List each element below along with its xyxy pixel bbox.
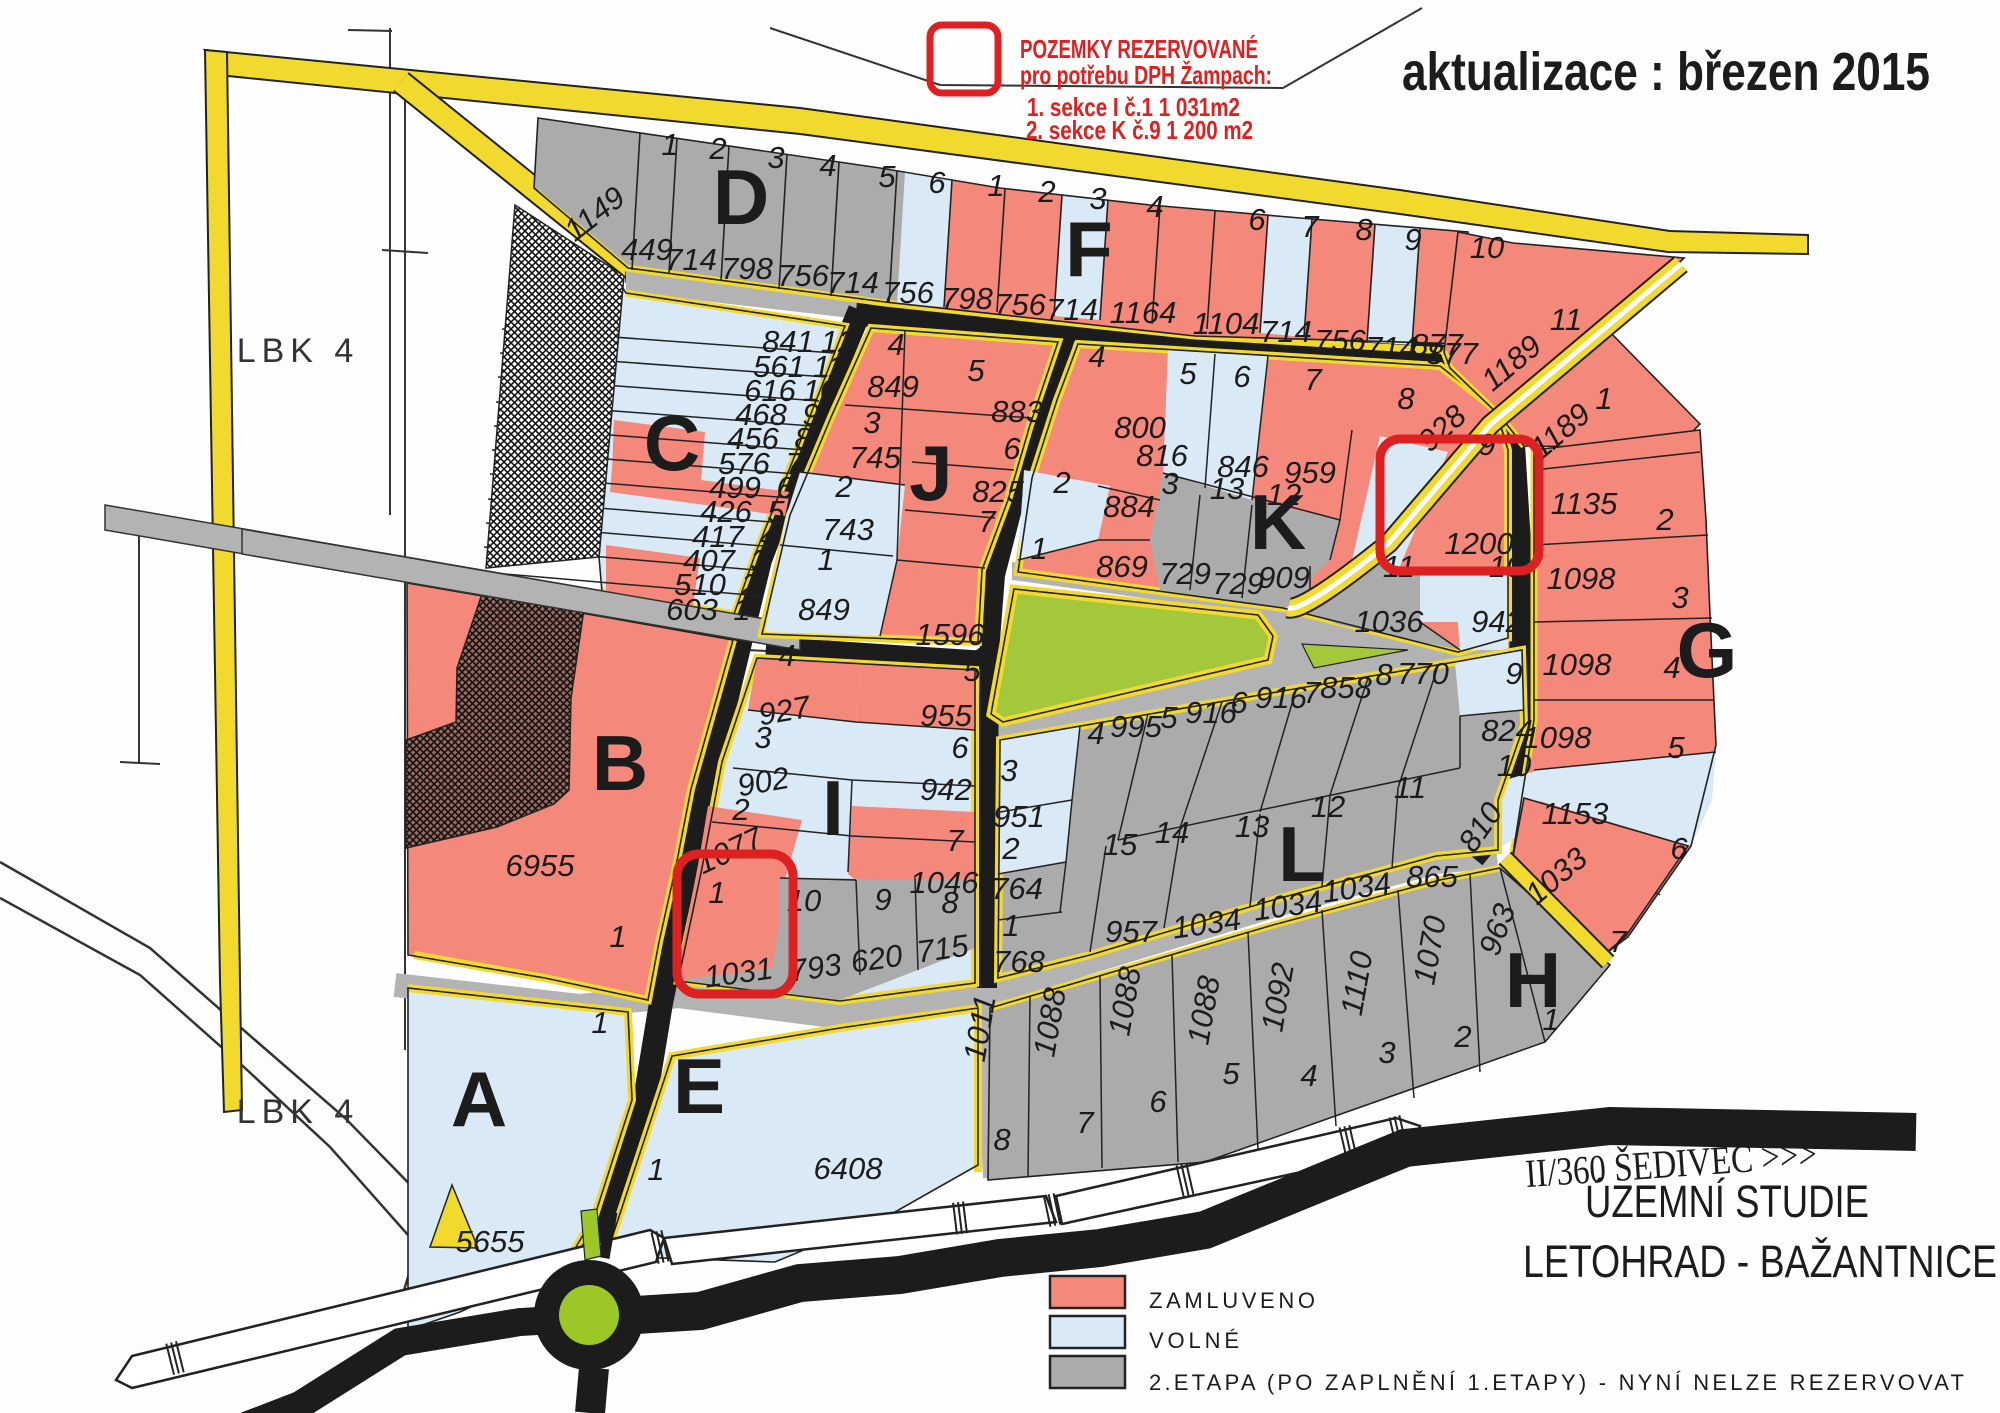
svg-text:5655: 5655 [456, 1224, 526, 1259]
svg-text:LBK 4: LBK 4 [237, 332, 360, 370]
svg-text:798: 798 [721, 251, 773, 286]
svg-text:770: 770 [1397, 656, 1449, 691]
svg-text:5: 5 [1160, 700, 1178, 735]
svg-text:6: 6 [1003, 431, 1021, 466]
svg-text:714: 714 [1365, 330, 1417, 365]
svg-text:5: 5 [878, 159, 896, 194]
svg-text:11: 11 [1550, 302, 1582, 337]
svg-text:6: 6 [1670, 831, 1688, 866]
svg-text:942: 942 [920, 772, 972, 807]
svg-text:7: 7 [1609, 924, 1628, 959]
svg-text:6: 6 [1233, 359, 1251, 394]
svg-text:3: 3 [1161, 466, 1178, 501]
svg-text:7: 7 [978, 504, 997, 539]
svg-text:1164: 1164 [1110, 295, 1177, 330]
svg-text:2: 2 [1001, 831, 1019, 866]
svg-text:6: 6 [1230, 685, 1248, 720]
svg-text:4: 4 [1087, 716, 1104, 751]
svg-text:J: J [909, 429, 952, 517]
svg-text:916: 916 [1255, 680, 1307, 715]
svg-text:7: 7 [1076, 1105, 1095, 1140]
svg-text:2: 2 [1037, 174, 1055, 209]
svg-text:1: 1 [708, 875, 725, 910]
svg-text:764: 764 [991, 871, 1043, 906]
svg-text:714: 714 [1260, 314, 1312, 349]
svg-text:3: 3 [767, 140, 784, 175]
svg-text:8: 8 [941, 885, 959, 920]
svg-text:4: 4 [887, 327, 904, 362]
svg-text:4: 4 [1663, 650, 1680, 685]
svg-text:9: 9 [1404, 222, 1421, 257]
svg-text:884: 884 [1103, 489, 1155, 524]
svg-text:768: 768 [993, 944, 1045, 979]
svg-text:8: 8 [993, 1122, 1011, 1157]
svg-text:D: D [713, 153, 769, 241]
svg-text:865: 865 [1406, 859, 1458, 894]
svg-text:883: 883 [991, 394, 1043, 429]
svg-text:841: 841 [762, 324, 814, 359]
svg-text:3: 3 [1671, 580, 1688, 615]
svg-text:4: 4 [778, 638, 795, 673]
svg-text:1153: 1153 [1542, 796, 1609, 831]
svg-text:714: 714 [665, 242, 717, 277]
svg-text:LETOHRAD - BAŽANTNICE: LETOHRAD - BAŽANTNICE [1523, 1236, 1997, 1287]
svg-text:9: 9 [1478, 427, 1495, 462]
svg-text:995: 995 [1110, 709, 1162, 744]
svg-text:5: 5 [1667, 730, 1685, 765]
svg-text:951: 951 [993, 799, 1045, 834]
svg-text:6: 6 [1149, 1084, 1167, 1119]
svg-text:ÚZEMNÍ STUDIE: ÚZEMNÍ STUDIE [1585, 1176, 1869, 1227]
svg-text:13: 13 [1235, 809, 1269, 844]
svg-text:4: 4 [1088, 339, 1105, 374]
svg-text:729: 729 [1159, 556, 1211, 591]
svg-text:10: 10 [1470, 230, 1504, 265]
svg-text:B: B [592, 719, 648, 807]
svg-text:756: 756 [1314, 323, 1366, 358]
svg-text:8: 8 [1375, 657, 1393, 692]
svg-text:957: 957 [1105, 914, 1158, 949]
svg-text:4: 4 [1146, 189, 1163, 224]
svg-text:pro potřebu DPH Žampach:: pro potřebu DPH Žampach: [1020, 60, 1272, 90]
svg-text:877: 877 [1411, 327, 1464, 362]
svg-text:1104: 1104 [1193, 306, 1260, 341]
svg-text:12: 12 [1267, 477, 1301, 512]
svg-text:620: 620 [848, 938, 904, 980]
svg-text:2: 2 [834, 469, 852, 504]
svg-text:6408: 6408 [814, 1151, 884, 1186]
svg-text:6: 6 [928, 165, 946, 200]
svg-text:955: 955 [920, 698, 972, 733]
svg-text:3: 3 [1000, 753, 1017, 788]
svg-text:E: E [673, 1042, 725, 1130]
svg-text:9: 9 [874, 882, 891, 917]
svg-text:8: 8 [1397, 381, 1415, 416]
svg-text:1596: 1596 [916, 617, 986, 652]
svg-text:2: 2 [1655, 502, 1673, 537]
svg-text:2: 2 [1052, 465, 1070, 500]
svg-text:715: 715 [914, 928, 971, 970]
svg-text:3: 3 [1378, 1035, 1395, 1070]
svg-text:7: 7 [1304, 362, 1323, 397]
svg-text:6: 6 [1248, 202, 1266, 237]
svg-text:3: 3 [863, 405, 880, 440]
svg-text:6955: 6955 [506, 848, 576, 883]
svg-text:1: 1 [1542, 1002, 1559, 1037]
svg-text:2: 2 [731, 792, 749, 827]
svg-text:9: 9 [1505, 656, 1522, 691]
svg-text:LBK 4: LBK 4 [237, 1093, 360, 1131]
svg-text:798: 798 [941, 281, 993, 316]
svg-text:714: 714 [1046, 292, 1098, 327]
svg-text:1: 1 [591, 1005, 608, 1040]
svg-text:849: 849 [867, 369, 919, 404]
svg-text:14: 14 [1155, 815, 1189, 850]
svg-text:1036: 1036 [1355, 604, 1425, 639]
svg-text:756: 756 [994, 287, 1046, 322]
svg-text:869: 869 [1096, 549, 1148, 584]
svg-text:4: 4 [819, 148, 836, 183]
svg-text:1: 1 [1595, 381, 1612, 416]
svg-text:G: G [1677, 606, 1738, 694]
svg-text:1: 1 [647, 1152, 664, 1187]
svg-text:1: 1 [1002, 908, 1019, 943]
svg-text:12: 12 [821, 324, 855, 359]
svg-text:849: 849 [798, 592, 850, 627]
svg-text:2: 2 [708, 131, 726, 166]
svg-text:909: 909 [1258, 560, 1310, 595]
svg-text:aktualizace : březen 2015: aktualizace : březen 2015 [1402, 42, 1930, 102]
svg-text:1098: 1098 [1547, 561, 1617, 596]
svg-text:C: C [644, 399, 700, 487]
svg-text:5: 5 [967, 353, 985, 388]
svg-text:1135: 1135 [1551, 486, 1618, 521]
svg-text:942: 942 [1471, 604, 1523, 639]
svg-text:6: 6 [951, 730, 969, 765]
svg-text:1: 1 [609, 919, 626, 954]
svg-text:1: 1 [661, 127, 678, 162]
svg-text:11: 11 [1394, 770, 1426, 805]
svg-text:7: 7 [946, 823, 965, 858]
svg-text:4: 4 [1300, 1058, 1317, 1093]
svg-text:1: 1 [987, 168, 1004, 203]
svg-text:5: 5 [1222, 1056, 1240, 1091]
svg-text:A: A [451, 1055, 507, 1143]
svg-text:ZAMLUVENO: ZAMLUVENO [1149, 1288, 1315, 1313]
svg-text:7: 7 [1301, 209, 1320, 244]
svg-text:1: 1 [817, 542, 834, 577]
svg-text:3: 3 [1089, 181, 1106, 216]
svg-text:12: 12 [1311, 789, 1345, 824]
svg-text:3: 3 [754, 720, 771, 755]
svg-text:714: 714 [827, 265, 879, 300]
svg-text:824: 824 [1481, 713, 1533, 748]
svg-text:10: 10 [1497, 748, 1531, 783]
svg-text:5: 5 [963, 653, 981, 688]
svg-text:756: 756 [882, 275, 934, 310]
svg-text:F: F [1065, 205, 1113, 293]
svg-text:15: 15 [1103, 827, 1138, 862]
svg-text:1098: 1098 [1543, 647, 1613, 682]
svg-text:8: 8 [1355, 212, 1373, 247]
svg-text:729: 729 [1212, 566, 1264, 601]
svg-text:2: 2 [1453, 1019, 1471, 1054]
svg-text:1: 1 [1030, 531, 1047, 566]
svg-text:13: 13 [1210, 471, 1244, 506]
svg-text:I: I [822, 764, 844, 852]
svg-text:745: 745 [849, 440, 901, 475]
svg-text:VOLNÉ: VOLNÉ [1149, 1328, 1239, 1353]
svg-text:5: 5 [1179, 356, 1197, 391]
svg-text:1098: 1098 [1523, 720, 1593, 755]
svg-text:756: 756 [777, 258, 829, 293]
svg-text:2. sekce K č.9 1 200 m2: 2. sekce K č.9 1 200 m2 [1026, 115, 1253, 145]
svg-text:858: 858 [1320, 670, 1372, 705]
